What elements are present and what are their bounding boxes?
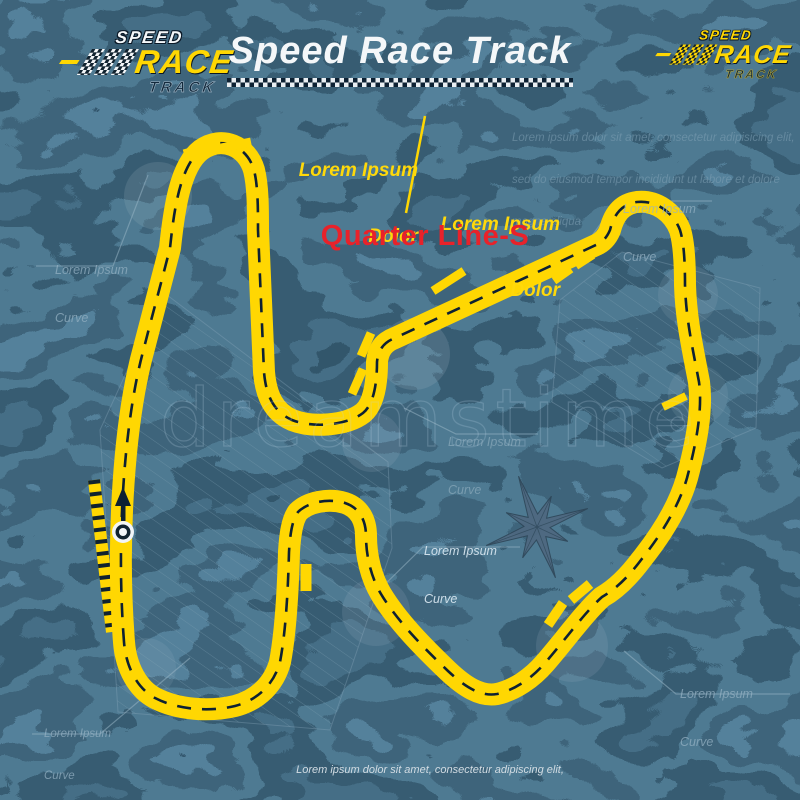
- callout-line: Curve: [44, 769, 111, 783]
- callout-line: Curve: [680, 734, 753, 750]
- callout-line: Lorem Ipsum: [44, 727, 111, 741]
- brand-logo-right: SPEED RACE TRACK: [652, 28, 800, 84]
- watermark-text: dreamstime: [160, 372, 701, 465]
- curve-callout-left-bottom: Lorem Ipsum Curve: [44, 699, 111, 800]
- speed-streak-icon: [655, 53, 671, 56]
- curve-callout-center-bottom: Lorem Ipsum Curve: [424, 511, 497, 639]
- logo-race-text: RACE: [713, 43, 792, 66]
- description-paragraph-bottom: Lorem ipsum dolor sit amet, consectetur …: [280, 737, 580, 800]
- paragraph-line: Lorem ipsum dolor sit amet, consectetur …: [280, 764, 580, 778]
- quarter-line-label: Quarter Line-S: [290, 220, 560, 253]
- callout-line: Curve: [55, 310, 128, 326]
- callout-line: Curve: [623, 249, 696, 265]
- curve-callout-right-bottom: Lorem Ipsum Curve: [680, 654, 753, 782]
- callout-line: Lorem Ipsum: [448, 434, 521, 450]
- sector-label-line: Lorem Ipsum: [270, 160, 418, 182]
- logo-track-text: TRACK: [724, 68, 779, 81]
- callout-line: Curve: [448, 482, 521, 498]
- logo-race-row: RACE: [655, 43, 793, 66]
- sector-label-a: Lorem Ipsum Dolor: [270, 116, 418, 292]
- logo-race-text: RACE: [133, 47, 235, 77]
- logo-track-text: TRACK: [148, 79, 218, 96]
- curve-callout-right-top: Lorem Ipsum Curve: [623, 169, 696, 297]
- sector-label-line: Dolor: [420, 280, 560, 302]
- paragraph-line: Lorem ipsum dolor sit amet, consectetur …: [512, 131, 797, 145]
- callout-line: Lorem Ipsum: [55, 262, 128, 278]
- callout-line: Lorem Ipsum: [424, 543, 497, 559]
- logo-race-row: RACE: [58, 47, 235, 77]
- sector-label-b: Lorem Ipsum Dolor: [420, 170, 560, 346]
- brand-logo-left: SPEED RACE TRACK: [55, 28, 325, 100]
- callout-line: Lorem Ipsum: [623, 201, 696, 217]
- curve-callout-left-top: Lorem Ipsum Curve: [55, 230, 128, 358]
- speed-streak-icon: [59, 60, 80, 64]
- racetrack-illustration: dreamstime Speed Race Track SPEED RACE T…: [0, 0, 800, 800]
- callout-line: Curve: [424, 591, 497, 607]
- callout-line: Lorem Ipsum: [680, 686, 753, 702]
